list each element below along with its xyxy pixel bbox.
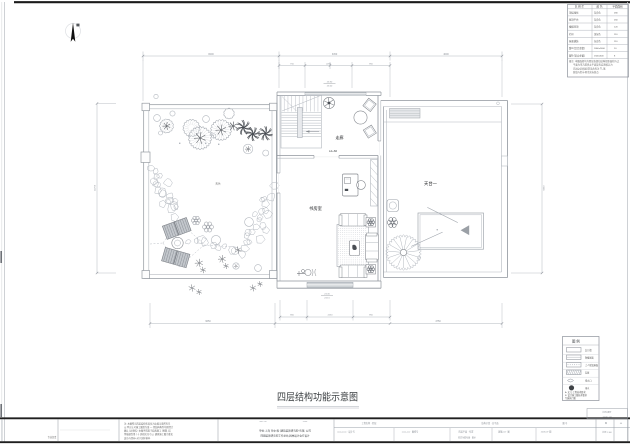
svg-text:深灰色: 深灰色	[594, 32, 601, 36]
svg-text:比例-图号: 比例-图号	[602, 410, 611, 414]
svg-text:以:甲方认可施工图纸为准 — 切结构构件均须经计: 以:甲方认可施工图纸为准 — 切结构构件均须经计	[124, 425, 174, 429]
svg-text:灰白色: 灰白色	[594, 18, 601, 22]
svg-text:1800x2400: 1800x2400	[594, 48, 606, 50]
svg-text:四层平面 · 布置: 四层平面 · 布置	[459, 429, 475, 433]
svg-text:备注: 本图面积均为四层各部位结构投影面积与之: 备注: 本图面积均为四层各部位结构投影面积与之	[569, 59, 620, 63]
svg-text:四层结构功能示意图: 四层结构功能示意图	[277, 390, 358, 403]
svg-text:280: 280	[614, 12, 618, 14]
svg-text:同期装饰研究院工作总站 园林设计会行设计: 同期装饰研究院工作总站 园林设计会行设计	[260, 433, 310, 437]
svg-text:04: 04	[620, 423, 623, 425]
svg-text:名 称 栏: 名 称 栏	[575, 5, 585, 9]
svg-text:准值与四十项引实标准点.: 准值与四十项引实标准点.	[573, 70, 600, 74]
svg-text:走廊: 走廊	[336, 134, 344, 140]
svg-text:x xxx: x xxx	[303, 421, 308, 423]
svg-text:750: 750	[290, 63, 294, 65]
svg-text:注: 本图所示四层结构布局仅为功能示意所有尺: 注: 本图所示四层结构布局仅为功能示意所有尺	[124, 421, 171, 425]
svg-text:110: 110	[614, 34, 618, 36]
svg-text:平面面积: 平面面积	[612, 5, 623, 9]
svg-text:等依据性用.) 十 其相关尺寸以. 建筑施工图为准实: 等依据性用.) 十 其相关尺寸以. 建筑施工图为准实	[124, 432, 174, 436]
svg-text:3450: 3450	[332, 53, 338, 56]
svg-text:结构示意 · 总平面: 结构示意 · 总平面	[482, 421, 500, 425]
svg-text:8: 8	[614, 55, 616, 57]
svg-text:屋面铺装: 屋面铺装	[569, 39, 579, 43]
svg-text:120: 120	[614, 27, 618, 29]
svg-text:灰白色: 灰白色	[594, 39, 601, 43]
svg-text:14700: 14700	[95, 184, 97, 191]
svg-text:110: 110	[614, 41, 618, 43]
svg-text:上人保温屋面: 上人保温屋面	[585, 363, 599, 367]
svg-text:9650: 9650	[205, 320, 211, 323]
svg-text:4000: 4000	[443, 53, 449, 56]
svg-text:图 例: 图 例	[572, 338, 580, 343]
svg-text:先进之后核验(常见含有注 TL 基: 先进之后核验(常见含有注 TL 基	[573, 66, 606, 70]
svg-text:950: 950	[369, 63, 373, 65]
svg-text:天台: 天台	[215, 182, 221, 186]
svg-text:2250: 2250	[328, 314, 334, 316]
svg-text:xxxx-xxxx · 设计号: xxxx-xxxx · 设计号	[337, 429, 355, 433]
svg-text:窗A (铝合金窗): 窗A (铝合金窗)	[569, 46, 585, 50]
svg-text:瓦屋: 瓦屋	[585, 371, 590, 375]
svg-text:颜 色: 颜 色	[597, 5, 603, 9]
svg-text:雨水: 雨水	[585, 386, 590, 390]
svg-text:顶层绿化: 顶层绿化	[569, 10, 579, 14]
svg-text:楼梯间顶: 楼梯间顶	[569, 25, 579, 29]
svg-text:排水口: 排水口	[585, 378, 592, 382]
svg-text:10: 10	[614, 48, 617, 50]
svg-text:比例 1:100: 比例 1:100	[602, 430, 612, 434]
svg-text:23.60: 23.60	[327, 86, 333, 88]
svg-text:连访与四向+对于实样基本.: 连访与四向+对于实样基本.	[124, 436, 151, 440]
svg-text:灰白色: 灰白色	[594, 10, 601, 14]
svg-text:8450: 8450	[544, 185, 546, 191]
svg-text:单位:上海 市中 级 (建筑装饰研究院-有限. 公司: 单位:上海 市中 级 (建筑装饰研究院-有限. 公司	[259, 429, 311, 433]
svg-text:23.90: 23.90	[327, 82, 333, 84]
svg-text:xxx—xx: xxx—xx	[260, 421, 267, 423]
svg-text:A. 女儿·工程技术要求: A. 女儿·工程技术要求	[565, 390, 586, 394]
svg-text:4750: 4750	[435, 320, 441, 323]
svg-text:窗B (铝合金窗): 窗B (铝合金窗)	[569, 53, 585, 57]
svg-text:950: 950	[369, 314, 373, 316]
svg-text:图 号: 图 号	[563, 421, 568, 425]
svg-text:8200: 8200	[208, 53, 214, 56]
svg-text:2250: 2250	[326, 63, 332, 65]
svg-text:260: 260	[614, 20, 618, 22]
svg-text:L2+60: L2+60	[329, 149, 338, 153]
svg-text:2006.07 期: 2006.07 期	[541, 429, 551, 433]
svg-text:23.15: 23.15	[324, 298, 330, 300]
svg-text:1:100 · 04: 1:100 · 04	[602, 416, 612, 418]
svg-text:1500x600: 1500x600	[594, 55, 604, 57]
svg-text:女儿墙: 女儿墙	[585, 348, 592, 352]
svg-text:书房室: 书房室	[309, 205, 323, 212]
svg-text:种植屋面: 种植屋面	[585, 356, 595, 360]
svg-text:900: 900	[290, 314, 294, 316]
svg-text:确认 (过审核) ·本图不得用于结构施工 (预算. 招: 确认 (过审核) ·本图不得用于结构施工 (预算. 招	[124, 429, 171, 433]
svg-text:xxxx-xxx · 图纸号: xxxx-xxx · 图纸号	[402, 429, 419, 433]
svg-text:天台一: 天台一	[424, 180, 438, 187]
svg-text:平面为甲方提供之平面没有实测核认为: 平面为甲方提供之平面没有实测核认为	[573, 63, 613, 67]
svg-text:建施-04 · 图: 建施-04 · 图	[498, 429, 509, 433]
svg-text:专业负责: 专业负责	[48, 435, 58, 439]
svg-text:工程名称 · 四层: 工程名称 · 四层	[362, 421, 377, 425]
svg-text:灰白色: 灰白色	[594, 25, 601, 29]
svg-text:栏杆: 栏杆	[569, 32, 574, 36]
svg-text:四层功能布置 · 图示: 四层功能布置 · 图示	[458, 436, 476, 440]
svg-text:图: 图	[605, 421, 607, 425]
svg-text:屋顶平台: 屋顶平台	[569, 18, 579, 22]
